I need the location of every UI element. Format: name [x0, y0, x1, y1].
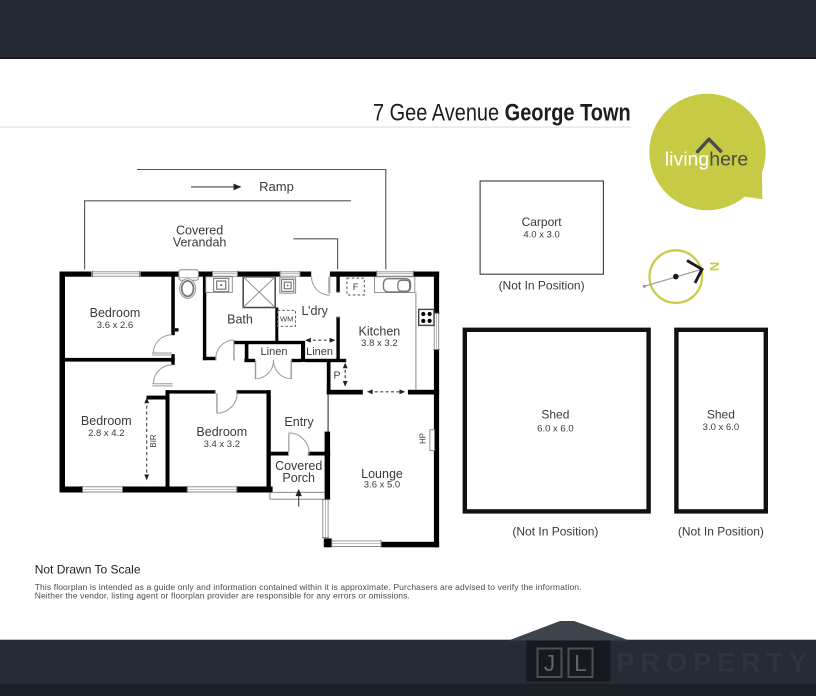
svg-text:F: F	[353, 282, 359, 293]
svg-text:Neither the vendor, listing ag: Neither the vendor, listing agent or flo…	[35, 590, 410, 600]
svg-text:J: J	[544, 650, 556, 676]
svg-text:(Not In Position): (Not In Position)	[678, 524, 764, 538]
svg-text:3.6 x 5.0: 3.6 x 5.0	[364, 480, 400, 491]
svg-text:Carport: Carport	[522, 215, 563, 229]
svg-text:3.4 x 3.2: 3.4 x 3.2	[204, 439, 240, 450]
svg-text:P: P	[333, 370, 340, 382]
svg-text:L: L	[574, 650, 587, 676]
svg-text:Bedroom: Bedroom	[81, 414, 132, 428]
svg-text:3.6 x 2.6: 3.6 x 2.6	[97, 320, 133, 331]
svg-text:(Not In Position): (Not In Position)	[512, 524, 598, 538]
svg-text:N: N	[707, 262, 722, 271]
svg-text:7 Gee Avenue George Town: 7 Gee Avenue George Town	[373, 99, 631, 126]
svg-text:Bedroom: Bedroom	[196, 425, 247, 439]
svg-text:Linen: Linen	[261, 346, 288, 358]
svg-text:Not Drawn To Scale: Not Drawn To Scale	[35, 562, 141, 576]
svg-text:(Not In Position): (Not In Position)	[499, 278, 585, 292]
svg-text:Kitchen: Kitchen	[359, 324, 401, 338]
svg-text:PROPERTY: PROPERTY	[617, 648, 814, 678]
svg-text:Shed: Shed	[707, 407, 735, 421]
svg-text:Bath: Bath	[227, 313, 253, 327]
svg-text:4.0 x 3.0: 4.0 x 3.0	[523, 229, 559, 240]
svg-text:WM: WM	[280, 315, 294, 324]
svg-text:Entry: Entry	[284, 415, 314, 429]
svg-text:Shed: Shed	[541, 407, 569, 421]
svg-text:BIR: BIR	[149, 434, 158, 447]
svg-text:2.8 x 4.2: 2.8 x 4.2	[88, 428, 124, 439]
svg-text:Bedroom: Bedroom	[90, 306, 141, 320]
svg-text:3.8 x 3.2: 3.8 x 3.2	[361, 338, 397, 349]
svg-text:L’dry: L’dry	[301, 304, 328, 318]
svg-text:Verandah: Verandah	[173, 236, 227, 250]
svg-text:HP: HP	[418, 433, 427, 444]
svg-text:3.0 x 6.0: 3.0 x 6.0	[703, 422, 739, 433]
svg-text:livinghere: livinghere	[665, 148, 748, 170]
svg-text:Ramp: Ramp	[259, 179, 294, 194]
svg-text:Linen: Linen	[306, 346, 333, 358]
svg-text:Porch: Porch	[282, 471, 315, 485]
svg-text:6.0 x 6.0: 6.0 x 6.0	[537, 424, 573, 435]
